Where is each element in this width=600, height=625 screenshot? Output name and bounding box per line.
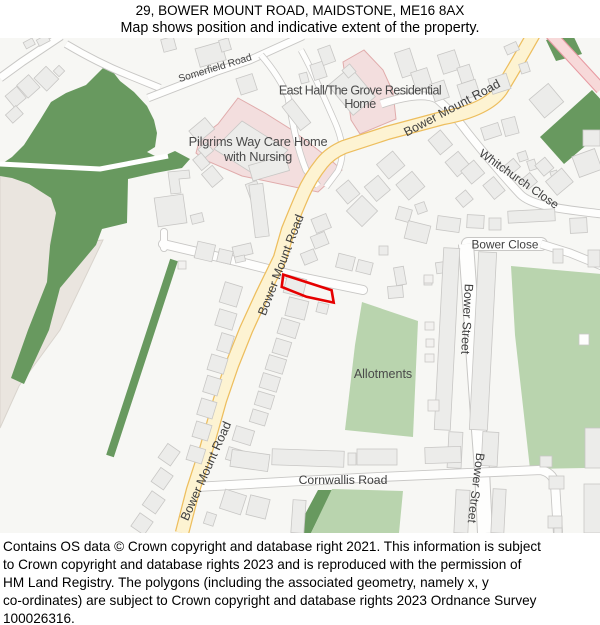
svg-text:Allotments: Allotments <box>354 367 412 381</box>
svg-text:Home: Home <box>344 97 376 111</box>
svg-text:Pilgrims Way Care Home: Pilgrims Way Care Home <box>189 134 328 149</box>
svg-text:with Nursing: with Nursing <box>223 149 292 164</box>
svg-text:East Hall/The Grove Residentia: East Hall/The Grove Residential <box>279 84 441 98</box>
svg-text:Bower Close: Bower Close <box>472 238 539 252</box>
svg-text:Cornwallis Road: Cornwallis Road <box>299 473 388 487</box>
